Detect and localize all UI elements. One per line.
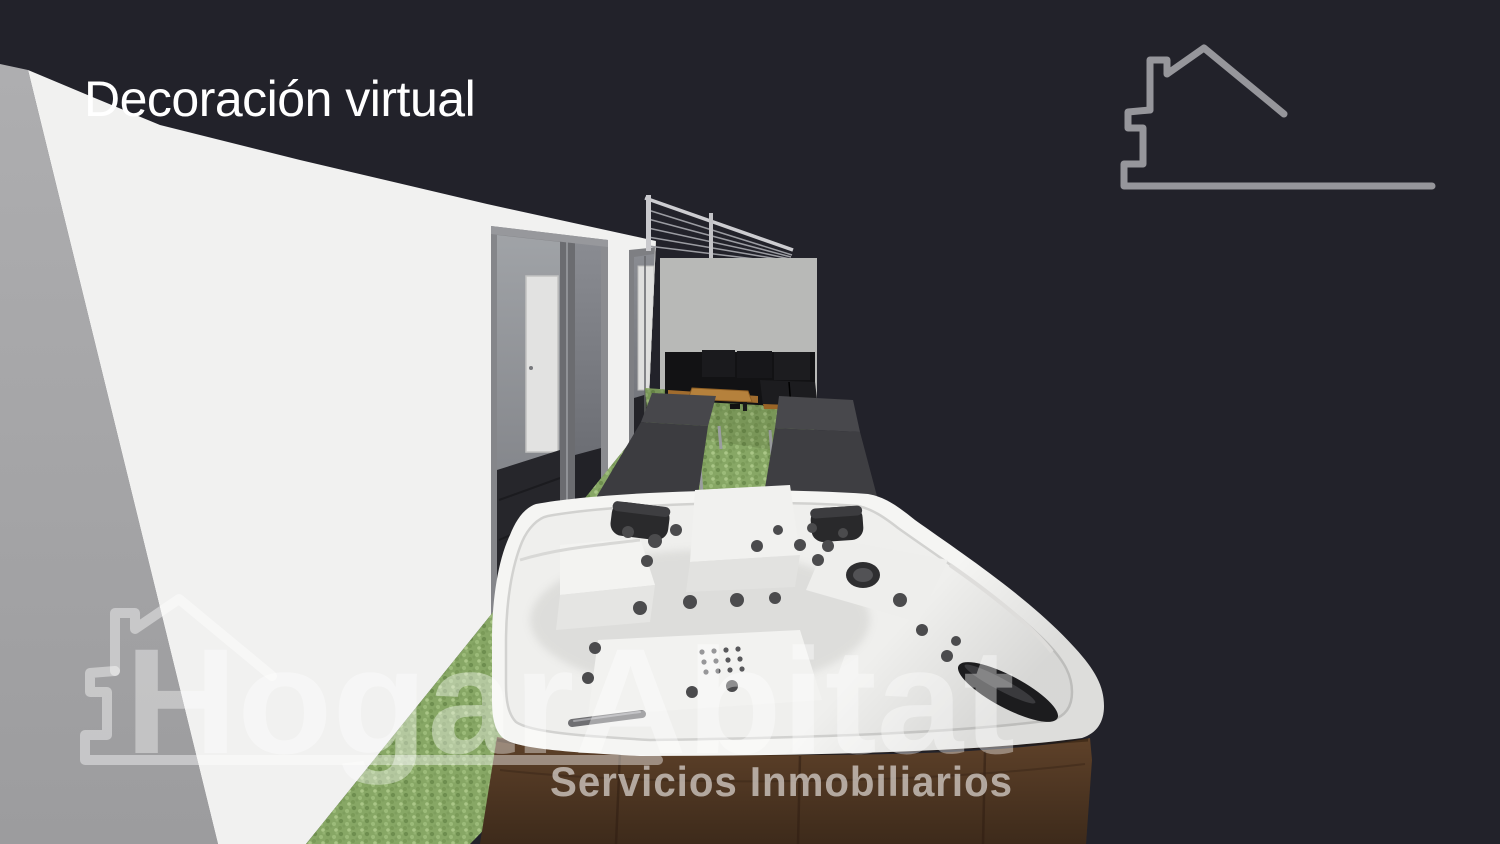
watermark-tagline-text: Servicios Inmobiliarios	[550, 758, 1013, 805]
property-render-slide: HogarAbitat Servicios Inmobiliarios Deco…	[0, 0, 1500, 844]
watermark: HogarAbitat Servicios Inmobiliarios	[85, 599, 1015, 805]
page-title: Decoración virtual	[84, 71, 475, 127]
terrace-3d-render: HogarAbitat Servicios Inmobiliarios Deco…	[0, 0, 1500, 844]
